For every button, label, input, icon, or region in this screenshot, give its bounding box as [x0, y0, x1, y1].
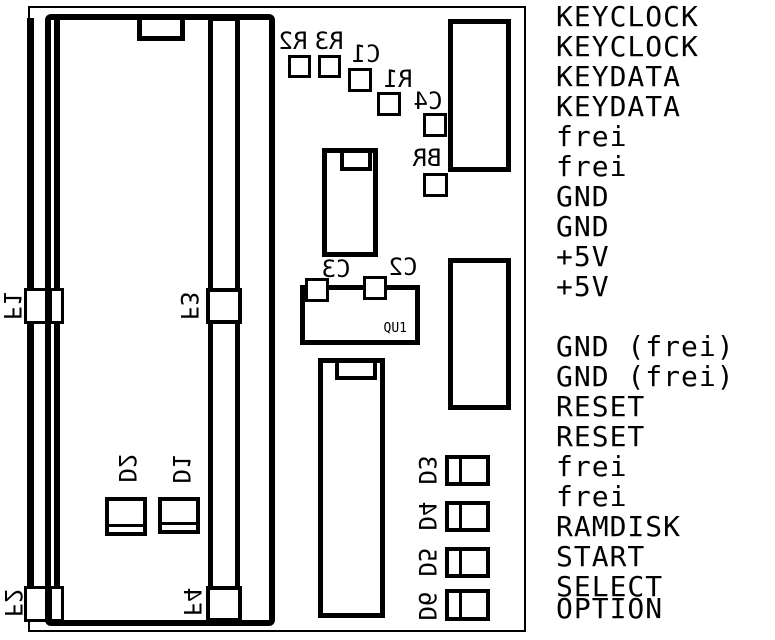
diode-d3	[445, 455, 490, 486]
socket-lower	[318, 358, 385, 618]
diode-d3-cathode-bar	[459, 459, 462, 482]
signal-frei-4: frei	[556, 482, 775, 512]
component-label-f3: F3	[177, 292, 201, 321]
pad-r3	[318, 55, 341, 78]
component-label-d6: D6	[415, 592, 439, 621]
signal-frei-2: frei	[556, 152, 775, 182]
diode-d6-cathode-bar	[459, 593, 462, 617]
component-label-c4: C4	[414, 89, 443, 113]
diode-d4	[445, 501, 490, 532]
signal-gnd-1: GND	[556, 182, 775, 212]
pad-c4	[423, 113, 447, 137]
signal-ramdisk: RAMDISK	[556, 512, 775, 542]
pad-c2	[363, 276, 387, 300]
diode-d1-cathode-bar	[162, 522, 196, 525]
connector-top-right	[448, 19, 511, 172]
signal-5v-2: +5V	[556, 272, 775, 302]
component-label-d5: D5	[415, 548, 439, 577]
signal-gnd-2: GND	[556, 212, 775, 242]
signal-gnd-frei-1: GND (frei)	[556, 332, 775, 362]
pad-f1-b	[49, 288, 64, 324]
component-label-c3: C3	[322, 257, 351, 281]
component-label-f2: F2	[1, 589, 25, 618]
signal-keydata-2: KEYDATA	[556, 92, 775, 122]
component-label-r1: R1	[384, 67, 413, 91]
pad-c1	[348, 68, 372, 92]
pad-f3	[206, 288, 242, 324]
socket-upper	[322, 148, 378, 257]
socket-upper-notch	[340, 153, 372, 171]
component-label-qu1: QU1	[384, 322, 407, 335]
signal-frei-1: frei	[556, 122, 775, 152]
pad-f4	[206, 586, 242, 622]
diode-d2-cathode-bar	[109, 524, 143, 527]
signal-5v-1: +5V	[556, 242, 775, 272]
component-label-r2: R2	[279, 29, 308, 53]
component-label-d1: D1	[169, 455, 193, 484]
component-label-br: BR	[413, 146, 442, 170]
pcb-layout-page: { "signals": { "upper": ["KEYCLOCK", "KE…	[0, 0, 775, 640]
pad-r1	[377, 92, 401, 116]
pcb-key-notch	[137, 20, 185, 41]
component-label-d3: D3	[415, 456, 439, 485]
pad-br	[423, 173, 448, 197]
signal-reset-2: RESET	[556, 422, 775, 452]
diode-d2	[105, 497, 147, 536]
component-label-d2: D2	[115, 454, 139, 483]
pad-f2-b	[49, 586, 64, 622]
component-label-c1: C1	[352, 42, 381, 66]
diode-d5-cathode-bar	[459, 551, 462, 574]
component-label-r3: R3	[315, 29, 344, 53]
pad-r2	[288, 55, 311, 78]
signal-keydata-1: KEYDATA	[556, 62, 775, 92]
signal-list-upper: KEYCLOCK KEYCLOCK KEYDATA KEYDATA frei f…	[556, 2, 775, 302]
signal-frei-3: frei	[556, 452, 775, 482]
diode-d5	[445, 547, 490, 578]
signal-reset-1: RESET	[556, 392, 775, 422]
diode-d4-cathode-bar	[459, 505, 462, 528]
component-label-c2: C2	[389, 255, 418, 279]
diode-d6	[445, 589, 490, 621]
signal-gnd-frei-2: GND (frei)	[556, 362, 775, 392]
component-label-d4: D4	[415, 502, 439, 531]
signal-start: START	[556, 542, 775, 572]
signal-option: OPTION	[556, 594, 775, 624]
signal-list-lower: GND (frei) GND (frei) RESET RESET frei f…	[556, 332, 775, 624]
diode-d1	[158, 497, 200, 534]
component-label-f4: F4	[180, 588, 204, 617]
connector-mid-right	[448, 258, 511, 410]
component-label-f1: F1	[0, 292, 24, 321]
pad-f2-a	[24, 586, 48, 622]
signal-keyclock-2: KEYCLOCK	[556, 32, 775, 62]
signal-keyclock-1: KEYCLOCK	[556, 2, 775, 32]
socket-lower-notch	[335, 363, 377, 380]
pad-f1-a	[24, 288, 48, 324]
